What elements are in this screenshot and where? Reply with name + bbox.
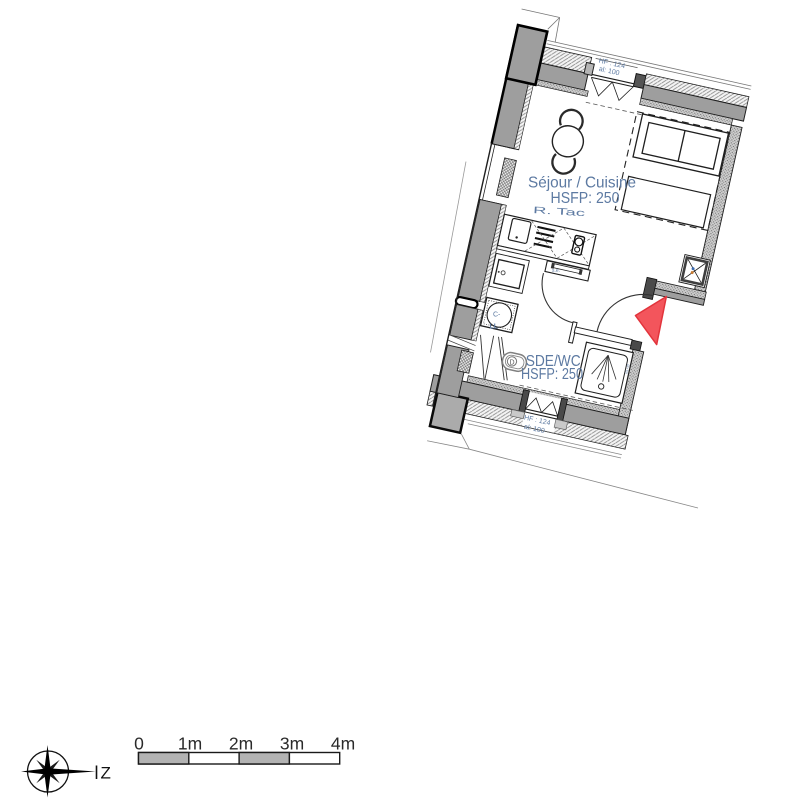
svg-text:Z: Z (101, 764, 111, 783)
svg-text:D: D (510, 360, 515, 367)
svg-text:LL: LL (490, 324, 499, 331)
svg-text:3m: 3m (280, 734, 304, 754)
svg-text:0: 0 (134, 734, 144, 754)
svg-text:4m: 4m (331, 734, 355, 754)
svg-text:2m: 2m (229, 734, 253, 754)
svg-text:R. Tac: R. Tac (533, 205, 586, 219)
svg-text:1m: 1m (178, 734, 202, 754)
svg-text:HSFP: 250: HSFP: 250 (521, 366, 583, 383)
svg-text:Séjour / Cuisine: Séjour / Cuisine (528, 175, 636, 192)
svg-text:HSFP: 250: HSFP: 250 (551, 190, 620, 207)
svg-text:C-: C- (493, 312, 501, 319)
svg-text:s.e.: s.e. (552, 268, 560, 274)
